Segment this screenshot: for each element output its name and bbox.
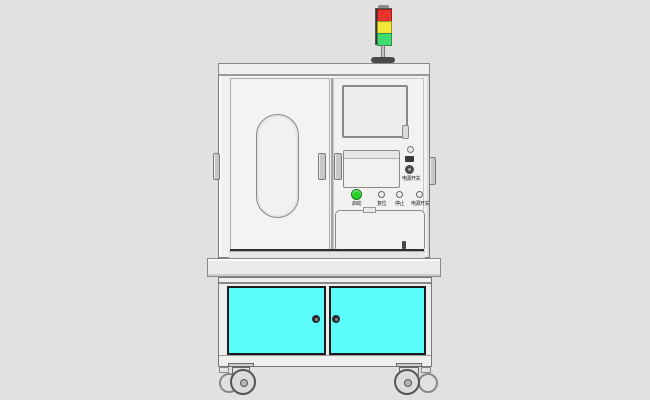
reset-button — [378, 191, 385, 198]
lower-left-door — [227, 286, 326, 355]
left-caster-wheel — [230, 369, 256, 395]
right-side-handle — [429, 157, 436, 185]
capsule-viewing-window — [256, 114, 299, 218]
access-panel-tab — [363, 207, 376, 213]
left-caster-hub — [240, 379, 248, 387]
right-caster-wheel — [394, 369, 420, 395]
left-door-handle — [318, 153, 326, 180]
machine-render: 电源开关 启动 复位 停止 电源开关 — [0, 0, 650, 400]
left-door-knob — [312, 315, 320, 323]
table-top-band — [207, 258, 441, 277]
key-switch — [405, 165, 414, 174]
lower-cabinet-bottom-line — [219, 355, 431, 356]
access-panel — [335, 210, 425, 252]
signal-tower-light — [375, 8, 392, 45]
upper-cabinet-base-strip — [229, 251, 425, 258]
left-side-handle — [213, 153, 220, 180]
upper-display-window — [342, 85, 408, 138]
indicator-lamp — [407, 146, 414, 153]
start-button — [351, 189, 362, 200]
power-button-label: 电源开关 — [405, 201, 435, 207]
lower-right-door — [329, 286, 426, 355]
cabinet-top-cap — [218, 63, 430, 76]
right-caster-swivel-ring — [418, 373, 438, 393]
stop-button — [396, 191, 403, 198]
power-switch-label: 电源开关 — [396, 176, 426, 182]
usb-port — [405, 156, 414, 162]
power-button — [416, 191, 423, 198]
right-door-knob — [332, 315, 340, 323]
right-door-handle — [334, 153, 342, 180]
lower-cabinet-top-rail — [219, 282, 431, 284]
access-panel-latch — [402, 241, 406, 249]
window-hinge — [402, 125, 409, 139]
screen-header-strip — [344, 151, 399, 159]
control-screen — [343, 150, 400, 188]
right-caster-hub — [404, 379, 412, 387]
